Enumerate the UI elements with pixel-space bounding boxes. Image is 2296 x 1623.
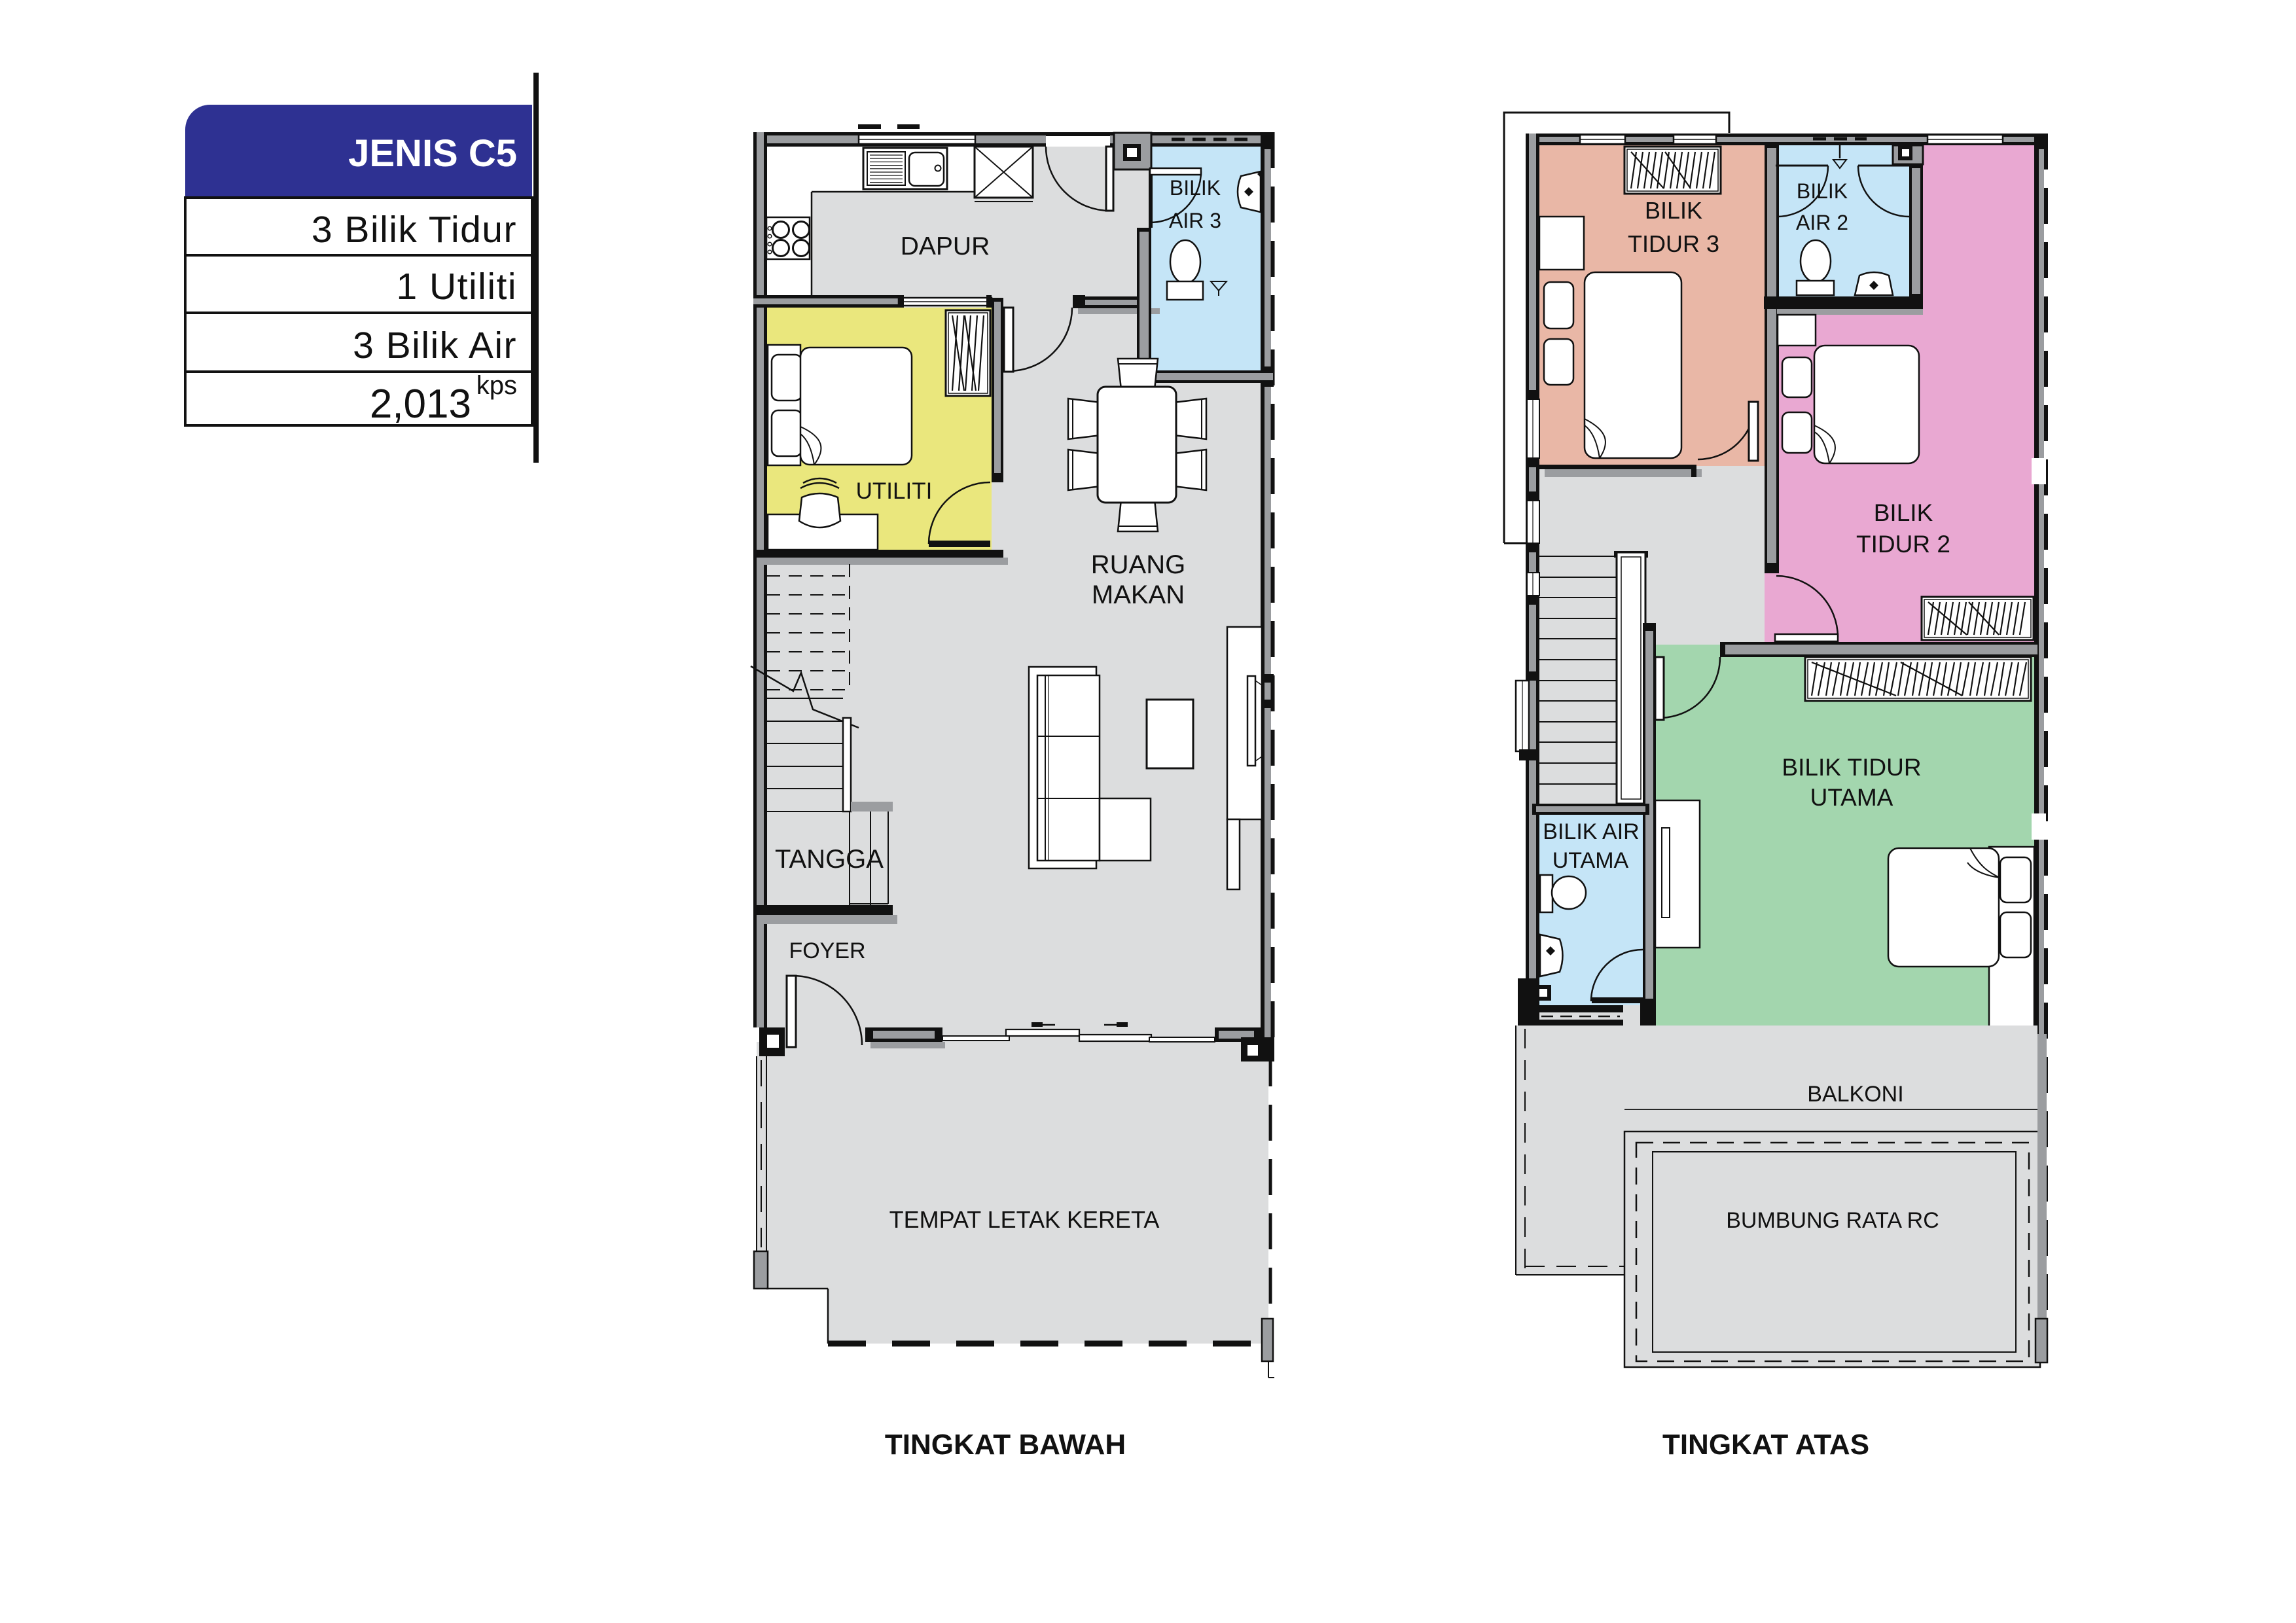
svg-text:TIDUR 2: TIDUR 2: [1856, 531, 1950, 558]
svg-text:BILIK TIDUR: BILIK TIDUR: [1782, 754, 1921, 781]
svg-text:MAKAN: MAKAN: [1092, 580, 1185, 609]
svg-text:RUANG: RUANG: [1091, 550, 1185, 579]
svg-text:AIR 2: AIR 2: [1796, 211, 1848, 234]
svg-text:BILIK: BILIK: [1874, 499, 1933, 526]
svg-text:TEMPAT LETAK KERETA: TEMPAT LETAK KERETA: [889, 1206, 1160, 1233]
svg-text:UTAMA: UTAMA: [1552, 848, 1629, 873]
svg-text:TINGKAT BAWAH: TINGKAT BAWAH: [885, 1429, 1126, 1461]
svg-text:3 Bilik Air: 3 Bilik Air: [353, 325, 517, 366]
svg-text:1 Utiliti: 1 Utiliti: [396, 266, 517, 308]
svg-text:FOYER: FOYER: [789, 938, 865, 963]
svg-text:BILIK: BILIK: [1645, 197, 1702, 224]
svg-text:3 Bilik Tidur: 3 Bilik Tidur: [312, 209, 517, 251]
svg-text:AIR 3: AIR 3: [1169, 209, 1221, 232]
svg-text:2,013: 2,013: [370, 382, 471, 427]
svg-text:JENIS C5: JENIS C5: [348, 132, 517, 175]
svg-text:TANGGA: TANGGA: [775, 845, 884, 874]
svg-text:BILIK: BILIK: [1797, 179, 1848, 203]
svg-text:TIDUR 3: TIDUR 3: [1628, 230, 1719, 257]
svg-text:UTILITI: UTILITI: [856, 478, 933, 504]
svg-text:kps: kps: [476, 371, 517, 400]
svg-text:BILIK AIR: BILIK AIR: [1543, 819, 1639, 844]
svg-text:BALKONI: BALKONI: [1807, 1082, 1903, 1107]
svg-text:BUMBUNG RATA RC: BUMBUNG RATA RC: [1726, 1208, 1939, 1233]
svg-text:UTAMA: UTAMA: [1810, 784, 1893, 811]
svg-text:BILIK: BILIK: [1170, 176, 1221, 200]
svg-text:DAPUR: DAPUR: [901, 232, 990, 260]
svg-text:TINGKAT ATAS: TINGKAT ATAS: [1662, 1429, 1869, 1461]
